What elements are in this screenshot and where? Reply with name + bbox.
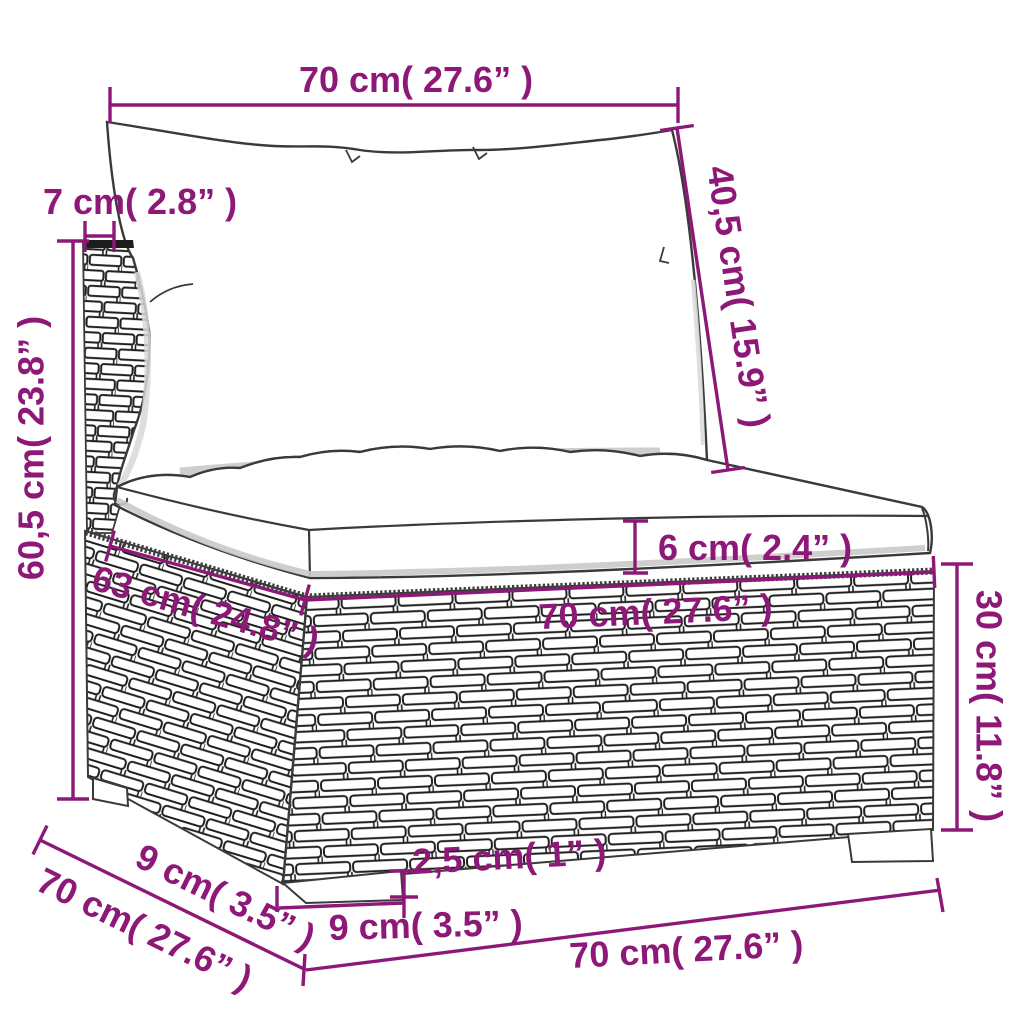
svg-text:6 cm( 2.4” ): 6 cm( 2.4” ) bbox=[658, 527, 852, 568]
svg-text:9 cm( 3.5” ): 9 cm( 3.5” ) bbox=[328, 902, 523, 948]
svg-text:7 cm( 2.8” ): 7 cm( 2.8” ) bbox=[43, 181, 237, 222]
svg-text:70 cm( 27.6” ): 70 cm( 27.6” ) bbox=[299, 59, 533, 100]
svg-text:30 cm( 11.8” ): 30 cm( 11.8” ) bbox=[968, 590, 1009, 822]
svg-text:60,5 cm( 23.8” ): 60,5 cm( 23.8” ) bbox=[11, 316, 52, 580]
